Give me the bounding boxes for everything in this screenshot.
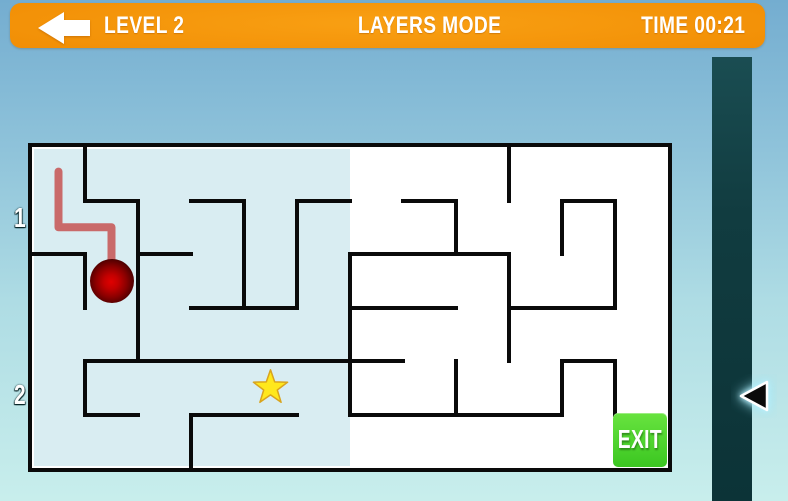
maze-wall [454,359,458,417]
header-bar: LEVEL 2 LAYERS MODE TIME 00:21 [10,3,765,48]
back-button[interactable] [36,10,92,46]
layer-cursor-icon[interactable] [731,374,777,418]
maze-wall [189,199,246,203]
maze-wall [560,199,564,257]
maze-wall [560,359,564,417]
maze-wall [136,252,193,256]
player-ball[interactable] [90,259,134,303]
maze-walls [0,0,788,501]
maze-wall [507,306,617,310]
maze-wall [242,199,246,310]
mode-label: LAYERS MODE [340,3,520,48]
game-screen: { "header": { "level": "LEVEL 2", "mode"… [0,0,788,501]
maze-wall [189,413,193,471]
maze-wall [83,199,140,203]
maze-wall [560,199,617,203]
maze-wall [83,413,140,417]
maze-wall [348,252,511,256]
maze-wall [136,199,140,364]
maze-wall [454,199,458,257]
maze-wall [348,306,458,310]
maze-wall [83,359,87,417]
level-label: LEVEL 2 [104,3,204,48]
maze-wall [401,199,458,203]
maze-wall [295,199,352,203]
maze-wall [613,199,617,310]
layer-sidebar [712,57,752,501]
maze-wall [613,359,617,417]
maze-wall [83,252,87,310]
maze-wall [507,145,511,203]
maze-wall [189,413,299,417]
exit-zone[interactable]: EXIT [613,413,667,468]
back-arrow-icon [38,12,90,44]
maze-wall [348,252,352,417]
maze-wall [507,252,511,363]
maze-wall [30,252,87,256]
maze-wall [83,359,405,363]
time-label: TIME 00:21 [615,3,745,48]
maze-wall [295,199,299,310]
maze-wall [83,145,87,203]
maze-wall [560,359,617,363]
